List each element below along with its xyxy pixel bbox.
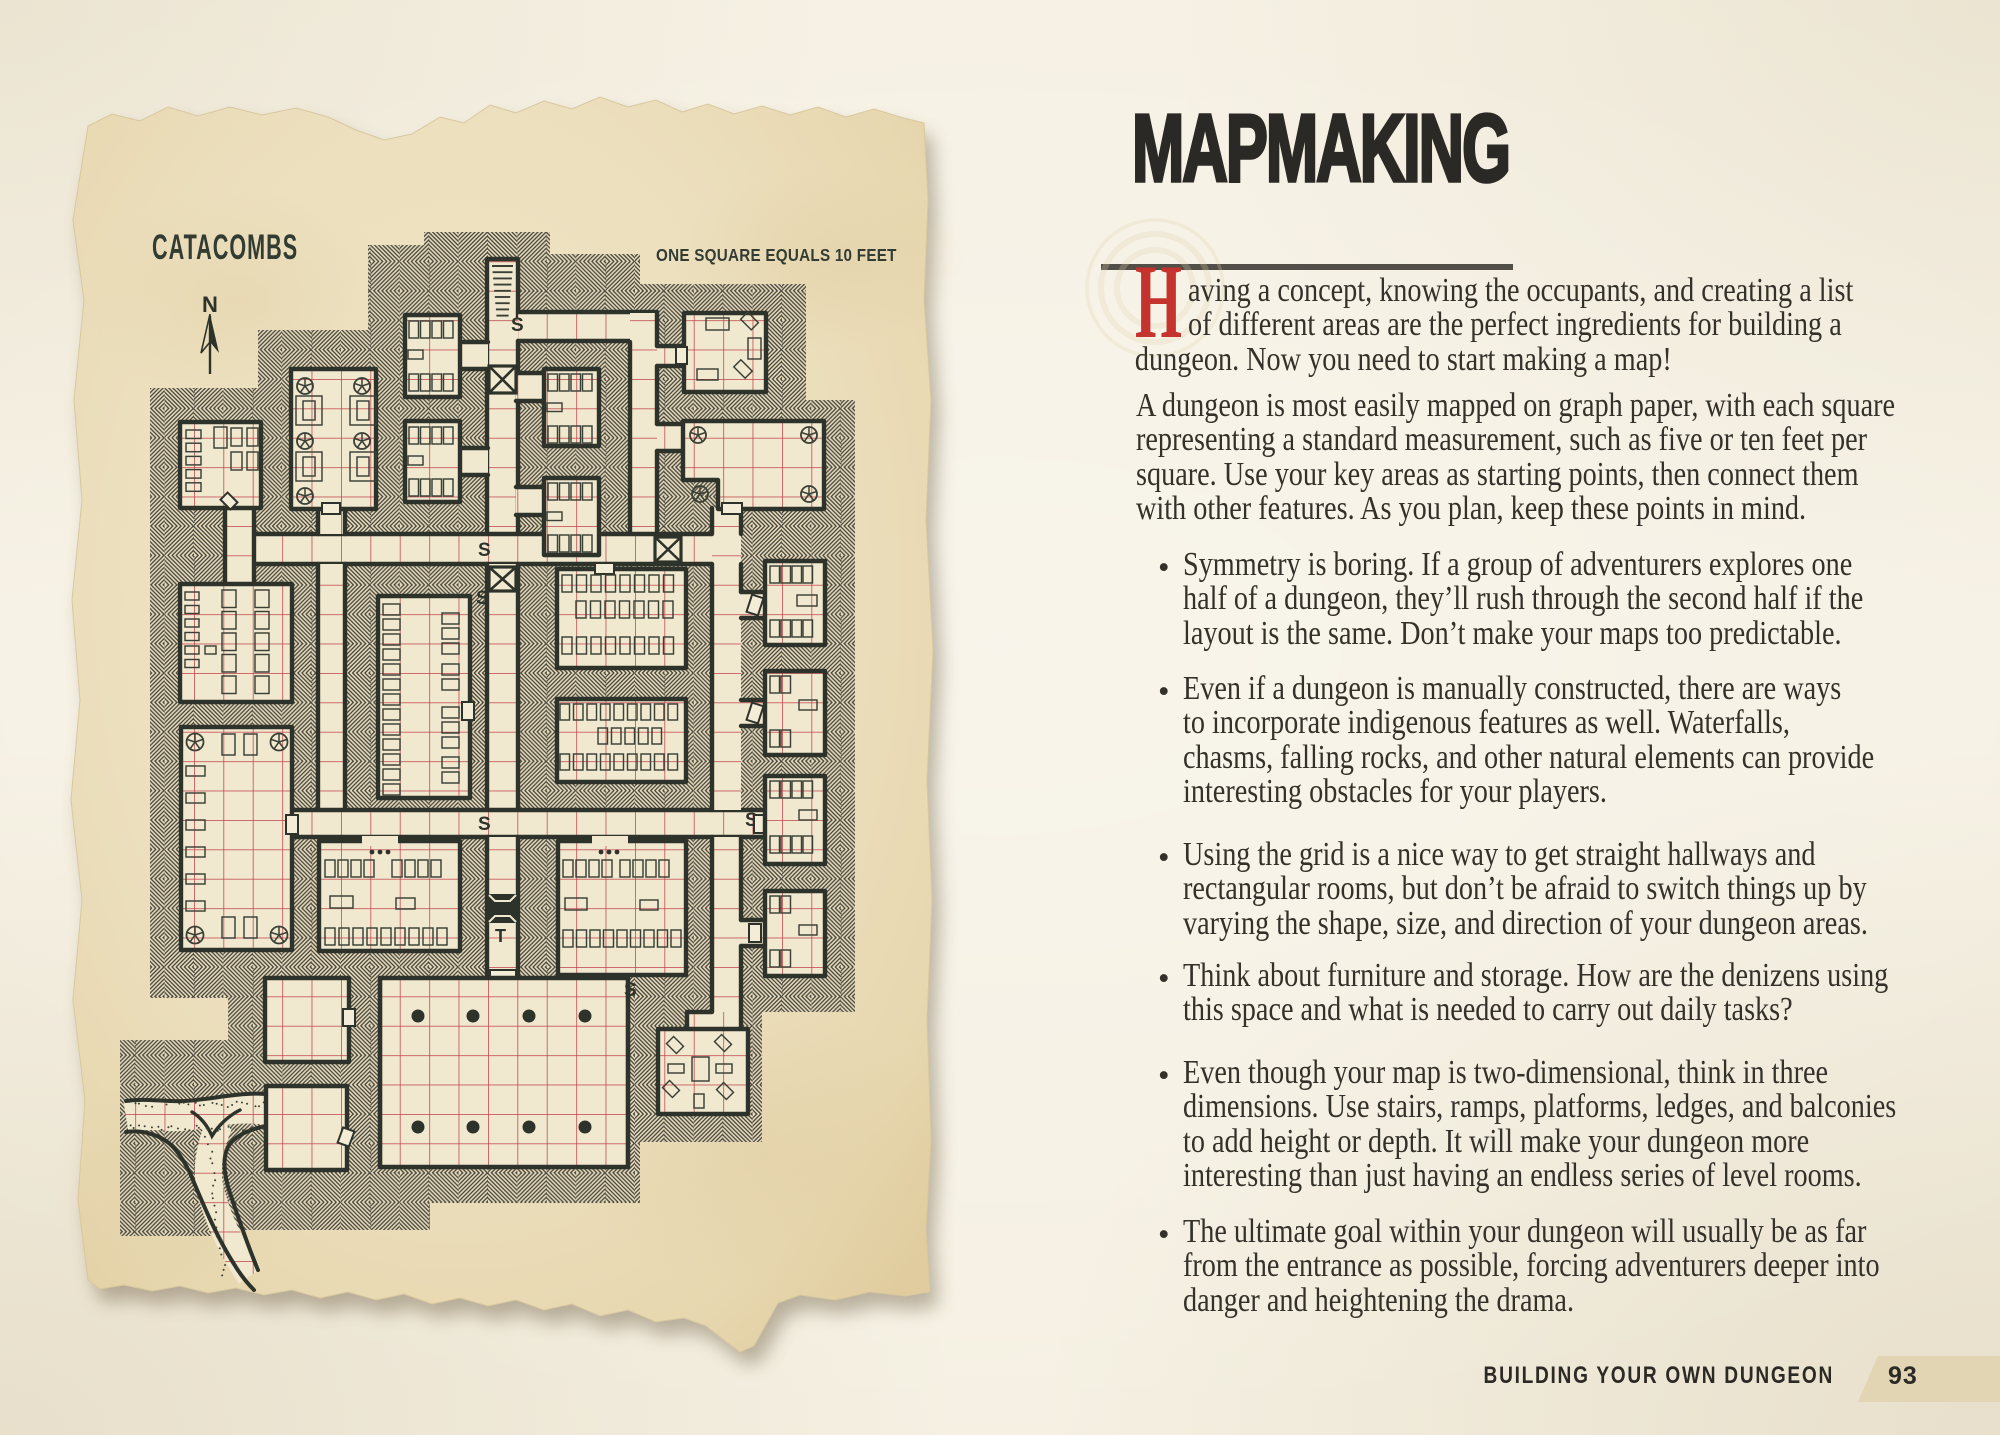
svg-text:S: S: [478, 814, 491, 835]
svg-text:ONE SQUARE EQUALS 10 FEET: ONE SQUARE EQUALS 10 FEET: [656, 246, 897, 265]
svg-text:S: S: [624, 980, 637, 1001]
svg-text:CATACOMBS: CATACOMBS: [152, 228, 298, 268]
svg-text:S: S: [511, 315, 524, 336]
svg-text:T: T: [495, 926, 506, 946]
svg-text:N: N: [202, 292, 218, 317]
svg-text:S: S: [478, 540, 491, 561]
svg-text:S: S: [476, 588, 489, 609]
